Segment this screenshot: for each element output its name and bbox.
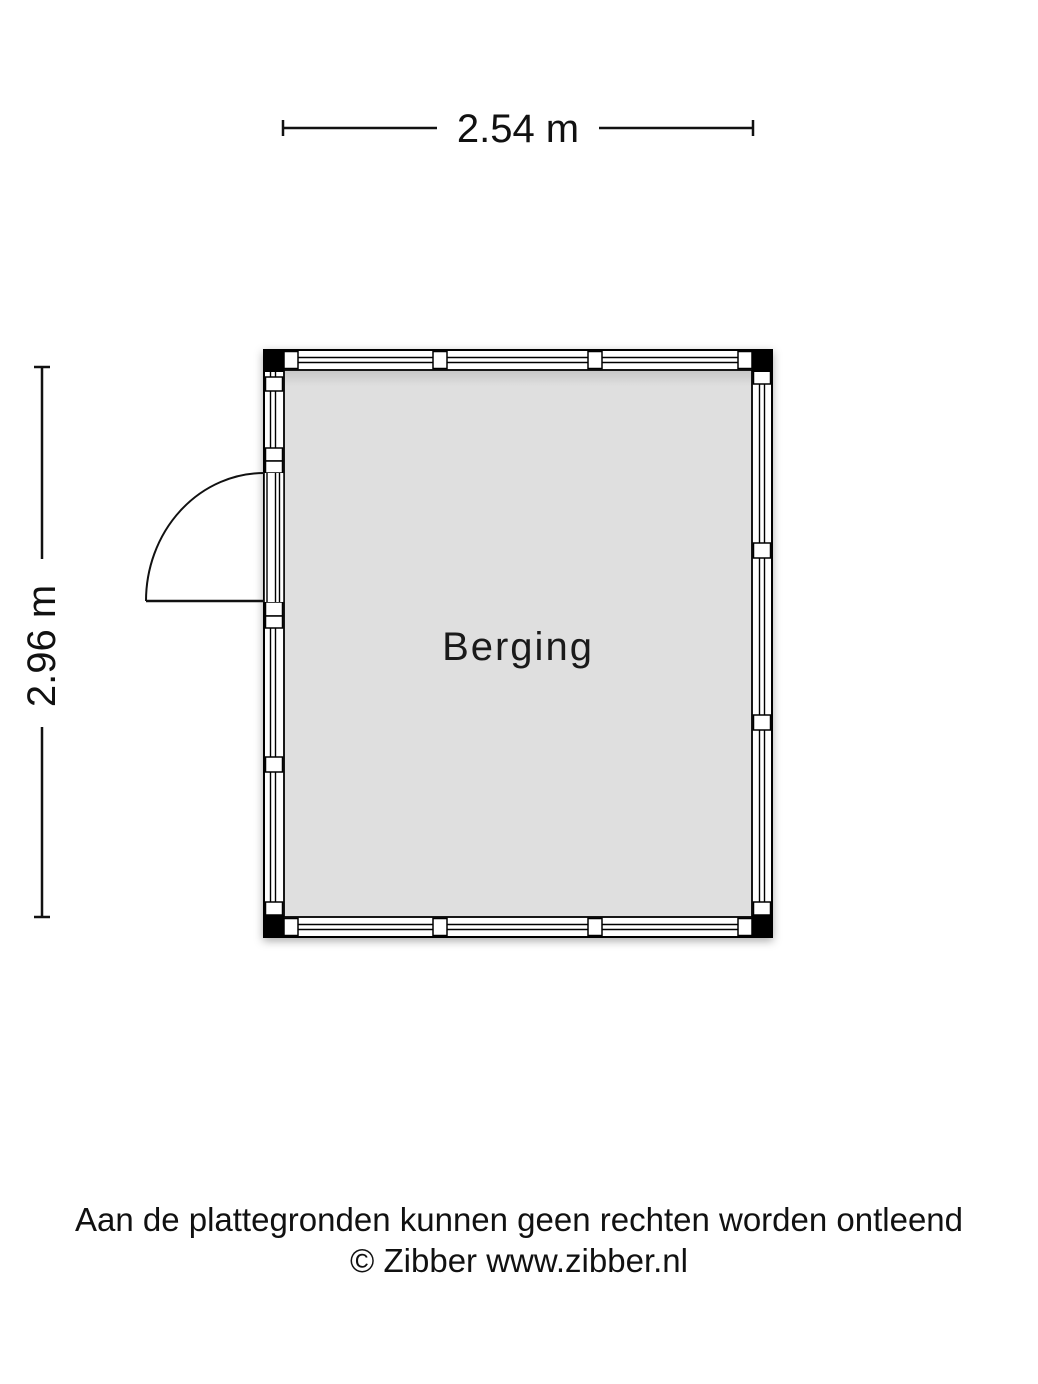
dimension-height-label: 2.96 m — [20, 585, 64, 707]
footer-disclaimer: Aan de plattegronden kunnen geen rechten… — [0, 1199, 1038, 1240]
door — [146, 473, 264, 601]
room-inner-shadow — [285, 371, 751, 386]
footer: Aan de plattegronden kunnen geen rechten… — [0, 1199, 1038, 1281]
corner-post-bottom-left — [264, 915, 284, 937]
dimension-width-label: 2.54 m — [457, 107, 579, 151]
footer-copyright: © Zibber www.zibber.nl — [0, 1240, 1038, 1281]
floorplan-page: 2.54 m 2.96 m — [0, 0, 1038, 1384]
floorplan-drawing: 2.54 m 2.96 m — [0, 0, 1038, 1384]
corner-post-top-left — [264, 350, 284, 372]
door-swing-arc-icon — [146, 473, 264, 601]
door-opening — [265, 473, 283, 602]
corner-post-bottom-right — [752, 915, 772, 937]
corner-post-top-right — [752, 350, 772, 372]
room-label: Berging — [442, 625, 594, 669]
